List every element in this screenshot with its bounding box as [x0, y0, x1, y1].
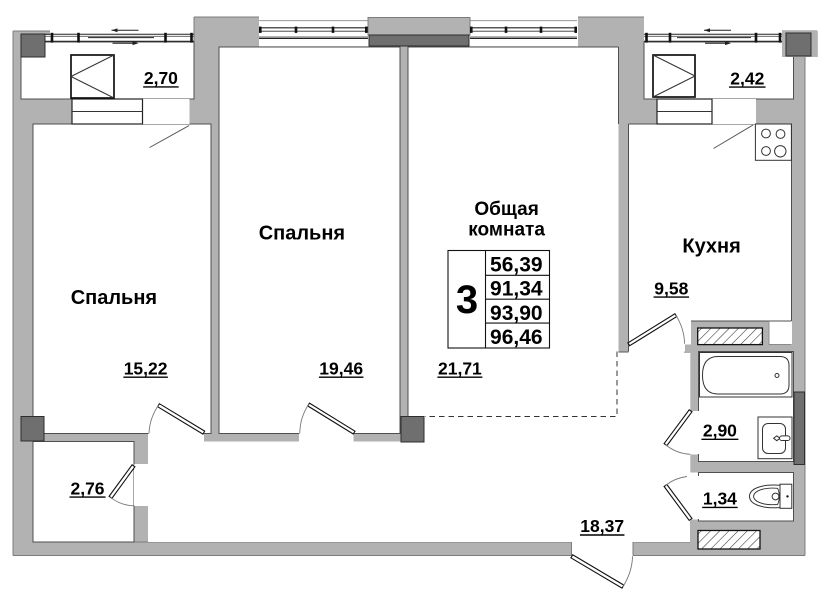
svg-text:Общая: Общая: [474, 199, 538, 220]
svg-text:19,46: 19,46: [319, 358, 363, 378]
svg-text:9,58: 9,58: [654, 278, 688, 298]
svg-text:Кухня: Кухня: [682, 235, 740, 257]
svg-text:21,71: 21,71: [438, 358, 482, 378]
svg-text:91,34: 91,34: [490, 278, 543, 301]
svg-text:56,39: 56,39: [490, 253, 543, 276]
svg-text:1,34: 1,34: [703, 489, 737, 509]
svg-text:2,42: 2,42: [730, 68, 764, 88]
svg-text:93,90: 93,90: [490, 302, 543, 325]
svg-text:15,22: 15,22: [124, 358, 168, 378]
svg-text:2,76: 2,76: [70, 478, 104, 498]
svg-text:Спальня: Спальня: [71, 287, 157, 309]
svg-text:3: 3: [456, 278, 478, 322]
svg-text:18,37: 18,37: [580, 516, 624, 536]
svg-text:2,70: 2,70: [144, 68, 178, 88]
svg-text:Спальня: Спальня: [259, 223, 345, 245]
svg-text:2,90: 2,90: [703, 421, 737, 441]
svg-text:комната: комната: [468, 219, 545, 240]
svg-text:96,46: 96,46: [490, 326, 543, 349]
